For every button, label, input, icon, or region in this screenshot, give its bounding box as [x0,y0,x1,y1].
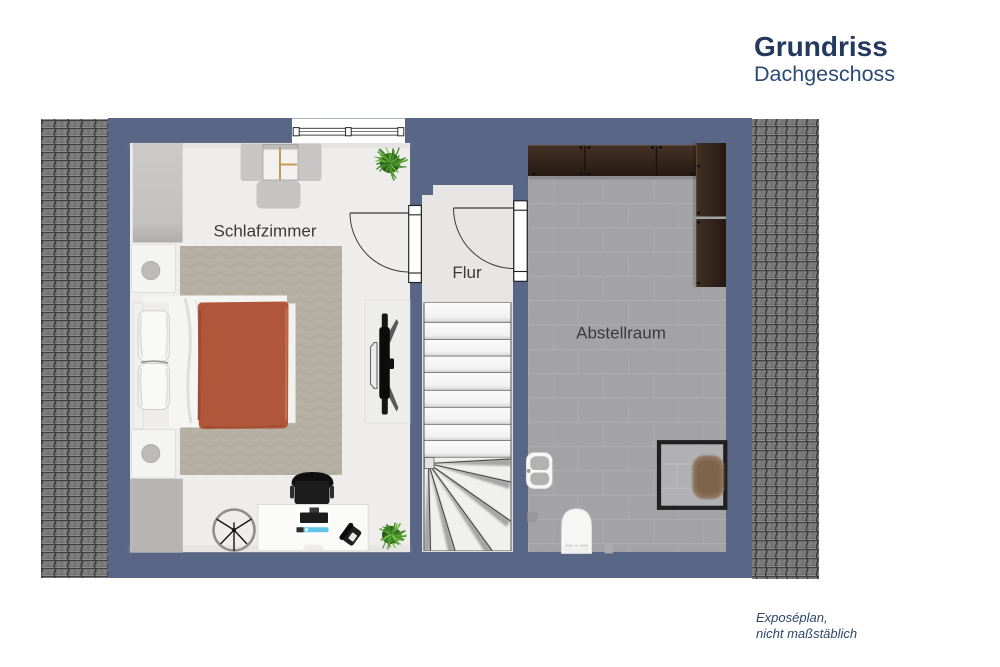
svg-text:Flur: Flur [452,263,482,282]
svg-text:Abstellraum: Abstellraum [576,324,666,343]
svg-text:Schlafzimmer: Schlafzimmer [214,222,317,241]
